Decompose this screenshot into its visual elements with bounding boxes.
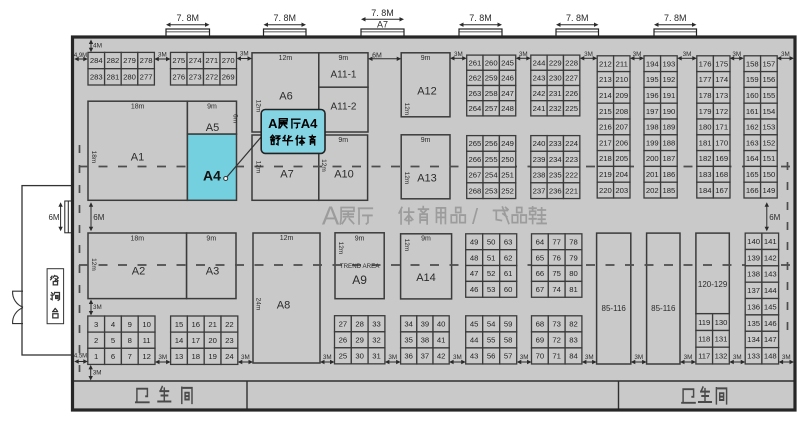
svg-text:15: 15 [175, 320, 184, 329]
svg-text:242: 242 [533, 89, 546, 98]
svg-text:209: 209 [615, 91, 628, 100]
svg-text:12m: 12m [255, 161, 262, 174]
svg-text:212: 212 [599, 59, 612, 68]
svg-text:134: 134 [747, 335, 761, 344]
svg-text:229: 229 [549, 58, 562, 67]
svg-text:280: 280 [123, 73, 136, 82]
svg-text:29: 29 [355, 336, 364, 345]
svg-text:3M: 3M [388, 354, 397, 361]
svg-text:247: 247 [501, 89, 514, 98]
svg-text:3M: 3M [240, 51, 249, 58]
svg-text:146: 146 [764, 319, 777, 328]
svg-text:36: 36 [404, 352, 413, 361]
svg-text:63: 63 [504, 237, 513, 246]
svg-text:265: 265 [468, 139, 481, 148]
svg-text:238: 238 [533, 171, 546, 180]
svg-text:3M: 3M [733, 354, 742, 361]
svg-text:60: 60 [504, 285, 513, 294]
svg-text:141: 141 [764, 237, 777, 246]
svg-text:76: 76 [552, 253, 561, 262]
svg-text:201: 201 [646, 170, 659, 179]
svg-text:7. 8M: 7. 8M [273, 13, 296, 23]
svg-text:279: 279 [123, 56, 136, 65]
svg-text:6m: 6m [232, 114, 239, 123]
svg-text:73: 73 [552, 320, 561, 329]
svg-text:245: 245 [501, 58, 514, 67]
svg-text:61: 61 [504, 269, 513, 278]
svg-text:198: 198 [646, 123, 659, 132]
svg-text:252: 252 [501, 186, 514, 195]
svg-text:58: 58 [504, 336, 513, 345]
svg-text:224: 224 [565, 139, 579, 148]
svg-text:77: 77 [552, 237, 561, 246]
svg-text:177: 177 [699, 75, 712, 84]
svg-text:A12: A12 [417, 86, 437, 98]
svg-text:6M: 6M [93, 213, 104, 222]
svg-text:68: 68 [536, 320, 545, 329]
svg-text:7. 8M: 7. 8M [469, 13, 492, 23]
svg-text:160: 160 [746, 91, 759, 100]
svg-text:3M: 3M [585, 354, 594, 361]
svg-text:65: 65 [536, 253, 545, 262]
svg-text:A4: A4 [301, 116, 318, 131]
svg-text:48: 48 [470, 253, 479, 262]
svg-text:64: 64 [536, 237, 545, 246]
svg-text:256: 256 [485, 139, 498, 148]
svg-text:179: 179 [699, 107, 712, 116]
svg-text:18: 18 [192, 352, 201, 361]
svg-text:3M: 3M [93, 370, 102, 377]
svg-text:176: 176 [699, 59, 712, 68]
svg-text:3M: 3M [158, 354, 167, 361]
svg-text:A14: A14 [416, 272, 436, 284]
svg-text:132: 132 [715, 351, 728, 360]
svg-text:140: 140 [747, 237, 760, 246]
svg-text:271: 271 [205, 56, 218, 65]
svg-text:274: 274 [189, 56, 203, 65]
svg-text:191: 191 [662, 91, 675, 100]
svg-text:3M: 3M [520, 354, 529, 361]
svg-text:33: 33 [372, 319, 381, 328]
svg-text:67: 67 [536, 285, 545, 294]
svg-text:6M: 6M [769, 213, 780, 222]
svg-text:9: 9 [128, 320, 132, 329]
svg-text:267: 267 [468, 171, 481, 180]
svg-text:163: 163 [746, 138, 759, 147]
svg-text:9m: 9m [206, 236, 216, 243]
svg-text:137: 137 [747, 286, 760, 295]
svg-text:268: 268 [468, 186, 481, 195]
svg-text:7. 8M: 7. 8M [371, 8, 394, 18]
svg-text:133: 133 [747, 352, 760, 361]
svg-text:A9: A9 [352, 273, 367, 287]
svg-text:12m: 12m [403, 103, 410, 116]
svg-text:1: 1 [94, 352, 98, 361]
svg-text:10: 10 [142, 320, 151, 329]
svg-text:9m: 9m [355, 235, 365, 242]
svg-text:169: 169 [715, 154, 728, 163]
svg-text:240: 240 [533, 139, 546, 148]
svg-text:31: 31 [372, 352, 381, 361]
svg-text:9m: 9m [207, 104, 217, 111]
svg-text:241: 241 [533, 104, 546, 113]
svg-text:172: 172 [715, 107, 728, 116]
svg-text:152: 152 [762, 138, 775, 147]
svg-text:6M: 6M [48, 213, 59, 222]
svg-text:196: 196 [646, 91, 659, 100]
svg-text:39: 39 [421, 320, 430, 329]
svg-text:12m: 12m [403, 172, 410, 185]
svg-text:82: 82 [569, 320, 578, 329]
svg-text:3M: 3M [684, 354, 693, 361]
svg-text:27: 27 [339, 319, 348, 328]
svg-text:9m: 9m [421, 55, 431, 62]
svg-text:TREND AREA: TREND AREA [340, 263, 380, 270]
svg-text:A7: A7 [280, 169, 293, 181]
svg-text:219: 219 [599, 170, 612, 179]
svg-text:9m: 9m [421, 137, 431, 144]
svg-text:243: 243 [533, 74, 546, 83]
svg-text:44: 44 [470, 336, 479, 345]
svg-text:56: 56 [487, 352, 496, 361]
svg-text:19: 19 [208, 352, 217, 361]
svg-text:190: 190 [662, 107, 675, 116]
svg-text:144: 144 [764, 286, 778, 295]
svg-text:34: 34 [404, 320, 413, 329]
svg-text:269: 269 [222, 73, 235, 82]
svg-text:135: 135 [747, 319, 760, 328]
svg-text:50: 50 [487, 237, 496, 246]
svg-text:45: 45 [470, 320, 479, 329]
svg-text:173: 173 [715, 91, 728, 100]
svg-text:A6: A6 [279, 91, 292, 103]
svg-text:154: 154 [762, 107, 776, 116]
svg-text:194: 194 [646, 59, 660, 68]
svg-text:53: 53 [487, 285, 496, 294]
svg-text:283: 283 [90, 73, 103, 82]
svg-text:12m: 12m [255, 100, 262, 113]
svg-text:231: 231 [549, 89, 562, 98]
svg-text:234: 234 [549, 155, 563, 164]
svg-text:A11-1: A11-1 [331, 70, 357, 81]
svg-text:71: 71 [552, 352, 561, 361]
svg-text:165: 165 [746, 170, 759, 179]
svg-text:181: 181 [699, 138, 712, 147]
svg-text:118: 118 [698, 335, 710, 344]
svg-text:21: 21 [208, 320, 217, 329]
svg-text:166: 166 [746, 186, 759, 195]
svg-text:211: 211 [616, 59, 628, 68]
svg-text:3M: 3M [158, 51, 167, 58]
svg-text:26: 26 [339, 336, 348, 345]
svg-text:75: 75 [552, 269, 561, 278]
svg-text:143: 143 [764, 270, 777, 279]
svg-text:A: A [268, 116, 278, 131]
svg-text:159: 159 [746, 75, 759, 84]
svg-text:12m: 12m [337, 242, 344, 255]
svg-text:9m: 9m [339, 55, 349, 62]
svg-text:213: 213 [599, 75, 612, 84]
svg-text:A5: A5 [206, 122, 219, 134]
svg-text:284: 284 [90, 56, 104, 65]
svg-text:14: 14 [175, 336, 184, 345]
svg-text:253: 253 [485, 186, 498, 195]
svg-text:3M: 3M [93, 304, 102, 311]
svg-text:28: 28 [355, 319, 364, 328]
svg-text:277: 277 [140, 73, 153, 82]
svg-text:273: 273 [189, 73, 202, 82]
svg-text:5: 5 [111, 336, 115, 345]
svg-text:80: 80 [569, 269, 578, 278]
svg-text:228: 228 [565, 58, 578, 67]
svg-text:214: 214 [599, 91, 613, 100]
svg-text:85-116: 85-116 [602, 304, 627, 313]
svg-text:197: 197 [646, 107, 659, 116]
svg-text:3M: 3M [782, 354, 791, 361]
svg-text:155: 155 [762, 91, 775, 100]
svg-text:249: 249 [501, 139, 514, 148]
svg-text:A10: A10 [334, 169, 354, 181]
svg-text:178: 178 [699, 91, 712, 100]
svg-text:32: 32 [372, 336, 381, 345]
svg-text:78: 78 [569, 237, 578, 246]
svg-text:282: 282 [106, 56, 119, 65]
svg-text:47: 47 [470, 269, 479, 278]
svg-text:6: 6 [111, 352, 115, 361]
svg-text:16: 16 [192, 320, 201, 329]
svg-text:24: 24 [225, 352, 234, 361]
svg-text:217: 217 [599, 138, 612, 147]
svg-text:184: 184 [699, 186, 713, 195]
svg-text:157: 157 [762, 59, 775, 68]
svg-text:52: 52 [487, 269, 496, 278]
svg-text:251: 251 [501, 171, 514, 180]
svg-text:17: 17 [192, 336, 201, 345]
svg-text:4M: 4M [93, 43, 102, 50]
svg-text:7. 8M: 7. 8M [664, 13, 687, 23]
svg-text:12: 12 [142, 352, 151, 361]
svg-text:4.5M: 4.5M [74, 354, 87, 360]
svg-text:35: 35 [404, 336, 413, 345]
svg-text:272: 272 [205, 73, 218, 82]
svg-text:119: 119 [698, 318, 710, 327]
svg-text:164: 164 [746, 154, 760, 163]
svg-text:7: 7 [128, 352, 132, 361]
svg-text:9m: 9m [421, 235, 431, 242]
svg-text:69: 69 [536, 336, 545, 345]
svg-text:79: 79 [569, 253, 578, 262]
svg-text:3M: 3M [454, 51, 463, 58]
svg-text:174: 174 [715, 75, 729, 84]
svg-text:12m: 12m [320, 159, 327, 172]
svg-text:147: 147 [764, 335, 777, 344]
svg-text:3M: 3M [453, 354, 462, 361]
svg-text:150: 150 [762, 170, 775, 179]
svg-text:221: 221 [565, 186, 578, 195]
svg-text:130: 130 [715, 318, 728, 327]
svg-text:24m: 24m [255, 298, 262, 311]
svg-text:A11-2: A11-2 [331, 102, 357, 113]
svg-text:22: 22 [225, 320, 234, 329]
svg-text:3: 3 [94, 320, 98, 329]
svg-text:70: 70 [536, 352, 545, 361]
svg-text:138: 138 [747, 270, 760, 279]
svg-text:248: 248 [501, 104, 514, 113]
svg-text:12m: 12m [279, 55, 293, 62]
svg-text:180: 180 [699, 123, 712, 132]
svg-text:189: 189 [662, 123, 675, 132]
svg-text:205: 205 [615, 154, 628, 163]
svg-text:153: 153 [762, 123, 775, 132]
svg-text:183: 183 [699, 170, 712, 179]
svg-text:207: 207 [615, 123, 628, 132]
svg-text:12m: 12m [403, 239, 410, 252]
svg-text:12m: 12m [280, 235, 294, 242]
svg-text:49: 49 [470, 237, 479, 246]
svg-text:3M: 3M [634, 354, 643, 361]
svg-text:230: 230 [549, 74, 562, 83]
svg-text:266: 266 [468, 155, 481, 164]
svg-text:170: 170 [715, 138, 728, 147]
svg-text:2: 2 [94, 336, 98, 345]
svg-text:142: 142 [764, 253, 777, 262]
svg-text:A7: A7 [377, 19, 388, 29]
svg-text:151: 151 [762, 154, 775, 163]
svg-text:A2: A2 [132, 266, 145, 278]
svg-text:62: 62 [504, 253, 513, 262]
svg-text:42: 42 [437, 352, 446, 361]
svg-text:158: 158 [746, 59, 759, 68]
svg-text:149: 149 [762, 186, 775, 195]
svg-text:139: 139 [747, 253, 760, 262]
svg-text:175: 175 [715, 59, 728, 68]
svg-text:263: 263 [468, 89, 481, 98]
svg-text:3M: 3M [584, 51, 593, 58]
svg-text:192: 192 [662, 75, 675, 84]
svg-text:117: 117 [698, 351, 710, 360]
svg-text:3M: 3M [683, 51, 692, 58]
svg-text:168: 168 [715, 170, 728, 179]
svg-text:276: 276 [172, 73, 185, 82]
svg-text:41: 41 [437, 336, 446, 345]
svg-text:218: 218 [599, 154, 612, 163]
svg-text:225: 225 [565, 104, 578, 113]
svg-text:187: 187 [662, 154, 675, 163]
svg-text:244: 244 [533, 58, 547, 67]
svg-text:20: 20 [208, 336, 217, 345]
svg-text:264: 264 [468, 104, 482, 113]
svg-text:A3: A3 [206, 266, 219, 278]
svg-text:59: 59 [504, 320, 513, 329]
svg-text:162: 162 [746, 123, 759, 132]
svg-text:55: 55 [487, 336, 496, 345]
svg-text:171: 171 [715, 123, 728, 132]
svg-text:A13: A13 [417, 173, 437, 185]
svg-text:38: 38 [421, 336, 430, 345]
svg-text:235: 235 [549, 171, 562, 180]
svg-text:260: 260 [485, 58, 498, 67]
svg-text:18m: 18m [130, 236, 144, 243]
svg-text:255: 255 [485, 155, 498, 164]
svg-text:216: 216 [599, 123, 612, 132]
svg-text:25: 25 [339, 352, 348, 361]
svg-text:208: 208 [615, 107, 628, 116]
svg-text:11: 11 [143, 336, 151, 345]
svg-text:85-116: 85-116 [651, 304, 676, 313]
svg-text:A: A [322, 201, 340, 231]
svg-text:51: 51 [487, 253, 496, 262]
svg-text:3M: 3M [781, 51, 790, 58]
svg-text:185: 185 [662, 186, 675, 195]
svg-text:72: 72 [552, 336, 561, 345]
svg-text:84: 84 [569, 352, 578, 361]
svg-text:227: 227 [565, 74, 578, 83]
svg-text:40: 40 [437, 320, 446, 329]
svg-text:57: 57 [504, 352, 513, 361]
svg-text:278: 278 [140, 56, 153, 65]
svg-text:23: 23 [225, 336, 234, 345]
svg-text:A8: A8 [277, 300, 290, 312]
svg-text:258: 258 [485, 89, 498, 98]
svg-text:30: 30 [355, 352, 364, 361]
svg-text:54: 54 [487, 320, 496, 329]
svg-text:148: 148 [764, 352, 777, 361]
svg-text:13: 13 [175, 352, 184, 361]
svg-text:A4: A4 [203, 168, 221, 184]
svg-text:182: 182 [699, 154, 712, 163]
svg-text:226: 226 [565, 89, 578, 98]
svg-text:202: 202 [646, 186, 659, 195]
svg-text:37: 37 [421, 352, 430, 361]
svg-text:261: 261 [468, 58, 481, 67]
svg-text:7. 8M: 7. 8M [566, 13, 589, 23]
svg-text:/: / [472, 204, 479, 229]
svg-text:120-129: 120-129 [698, 280, 728, 289]
svg-text:83: 83 [569, 336, 578, 345]
svg-text:8: 8 [128, 336, 132, 345]
svg-text:220: 220 [599, 186, 612, 195]
svg-text:200: 200 [646, 154, 659, 163]
svg-text:237: 237 [533, 186, 546, 195]
svg-text:259: 259 [485, 74, 498, 83]
svg-text:4: 4 [111, 320, 116, 329]
svg-text:131: 131 [715, 335, 728, 344]
svg-text:74: 74 [552, 285, 561, 294]
svg-text:206: 206 [615, 138, 628, 147]
svg-text:257: 257 [485, 104, 498, 113]
svg-text:199: 199 [646, 138, 659, 147]
svg-text:222: 222 [565, 171, 578, 180]
svg-text:270: 270 [222, 56, 235, 65]
svg-text:195: 195 [646, 75, 659, 84]
svg-text:210: 210 [615, 75, 628, 84]
svg-text:66: 66 [536, 269, 545, 278]
svg-text:18m: 18m [90, 151, 97, 164]
svg-text:46: 46 [470, 285, 479, 294]
svg-text:3M: 3M [241, 354, 250, 361]
svg-text:232: 232 [549, 104, 562, 113]
svg-text:156: 156 [762, 75, 775, 84]
svg-text:254: 254 [485, 171, 499, 180]
svg-text:161: 161 [746, 107, 759, 116]
svg-text:233: 233 [549, 139, 562, 148]
svg-text:145: 145 [764, 302, 777, 311]
svg-text:3M: 3M [323, 354, 332, 361]
svg-text:246: 246 [501, 74, 514, 83]
svg-text:275: 275 [172, 56, 185, 65]
svg-text:215: 215 [599, 107, 612, 116]
svg-text:262: 262 [468, 74, 481, 83]
